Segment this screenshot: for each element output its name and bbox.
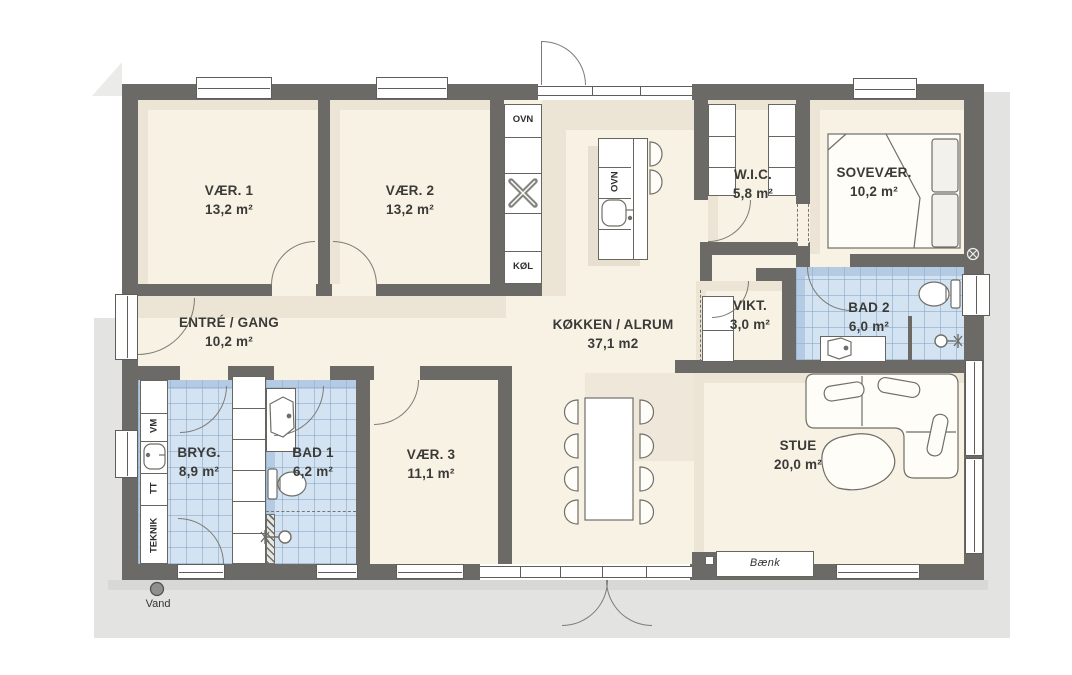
furniture-layer: [0, 0, 1072, 675]
room-label-bad1: BAD 16,2 m²: [292, 444, 334, 481]
room-label-bryg: BRYG.8,9 m²: [177, 444, 220, 481]
sink-icon: [144, 444, 165, 469]
floor-plan: VÆR. 113,2 m² VÆR. 213,2 m² ENTRÉ / GANG…: [0, 0, 1072, 675]
dryer-label: TT: [141, 474, 167, 502]
island-oven-label: OVN: [600, 168, 630, 196]
pouf: [822, 434, 895, 490]
room-label-koekken: KØKKEN / ALRUM37,1 m2: [553, 316, 674, 353]
oven-label: OVN: [504, 108, 542, 132]
toilet-icon: [919, 280, 960, 308]
teknik-label: TEKNIK: [141, 508, 167, 562]
sink-icon: [828, 338, 851, 359]
water-label: Vand: [136, 599, 180, 610]
fridge-label: KØL: [504, 254, 542, 280]
room-label-vaer3: VÆR. 311,1 m²: [407, 446, 455, 483]
room-label-stue: STUE20,0 m²: [774, 437, 822, 474]
dining-table: [565, 398, 654, 524]
bench-label: Bænk: [722, 558, 808, 569]
room-label-entre: ENTRÉ / GANG10,2 m²: [179, 314, 279, 351]
room-label-vaer2: VÆR. 213,2 m²: [386, 182, 434, 219]
shower-icon: [935, 334, 962, 348]
room-label-bad2: BAD 26,0 m²: [848, 299, 890, 336]
room-label-vikt: VIKT.3,0 m²: [730, 297, 770, 334]
bar-stools: [650, 142, 662, 194]
room-label-sovevaer: SOVEVÆR.10,2 m²: [836, 164, 911, 201]
hob-icon-highlight: [511, 181, 535, 205]
washing-machine-label: VM: [141, 413, 167, 439]
shower-icon: [261, 530, 291, 544]
room-label-vaer1: VÆR. 113,2 m²: [205, 182, 253, 219]
ventilation-icon: [968, 249, 979, 260]
room-label-wic: W.I.C.5,8 m²: [733, 166, 773, 203]
sink-icon: [602, 200, 633, 226]
water-point-icon: [151, 583, 164, 596]
sink-icon: [270, 397, 294, 437]
